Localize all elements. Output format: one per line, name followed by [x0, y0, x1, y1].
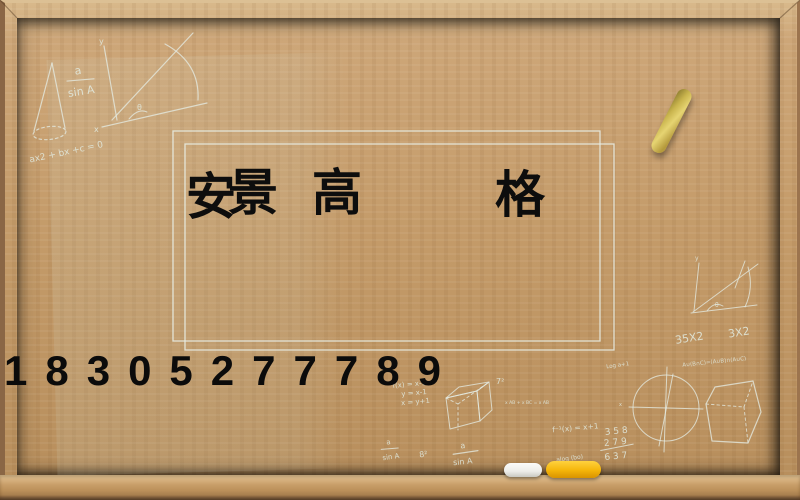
light-reflection: [47, 52, 354, 476]
title-char: 景: [228, 168, 278, 218]
chalk-tray: [0, 475, 800, 500]
yellow-chalk-piece: [546, 461, 601, 478]
chalkboard-scene: a sin A y x θ ax2 + bx +c = 0 y: [0, 0, 800, 500]
phone-number: 18305277789: [4, 350, 459, 392]
white-chalk-piece: [504, 463, 542, 477]
title-char: 高: [312, 168, 362, 218]
title-char: 格: [495, 170, 545, 220]
